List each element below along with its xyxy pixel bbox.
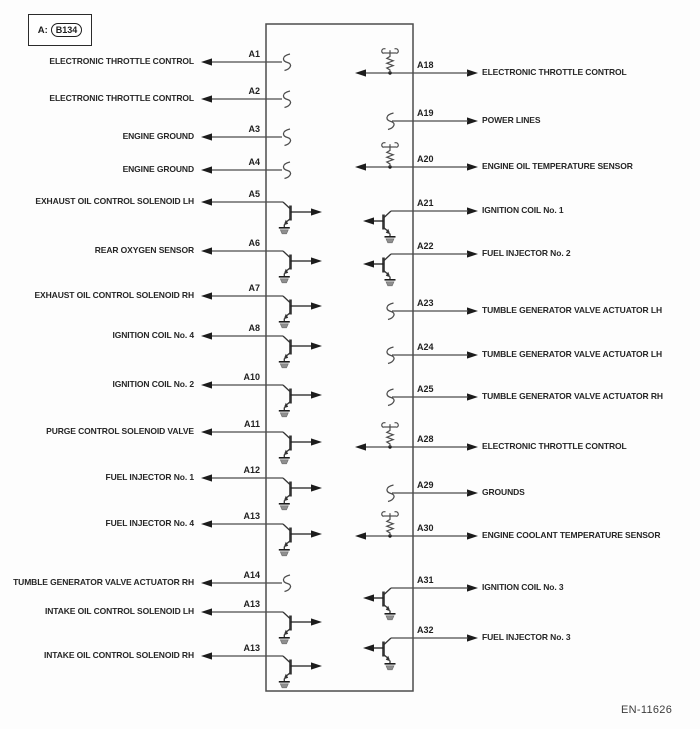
arrowhead-left xyxy=(355,532,366,539)
driver-transistor-icon xyxy=(363,588,396,620)
pin-number-label: A18 xyxy=(417,60,434,70)
pin-number-label: A3 xyxy=(180,124,260,134)
pin-row-right xyxy=(363,250,478,285)
signal-label: ELECTRONIC THROTTLE CONTROL xyxy=(482,441,627,452)
pin-row-left xyxy=(201,652,322,687)
driver-transistor-icon xyxy=(279,612,322,644)
arrowhead-left xyxy=(201,428,212,435)
ground-icon xyxy=(279,504,290,510)
driver-transistor-icon xyxy=(279,432,322,464)
arrowhead-right xyxy=(311,662,322,669)
arrowhead-right xyxy=(467,69,478,76)
arrowhead-left xyxy=(201,292,212,299)
arrowhead-right xyxy=(467,634,478,641)
arrowhead-right xyxy=(467,163,478,170)
wiring-diagram-page: A: B134 ELECTRONIC THROTTLE CONTROLA1ELE… xyxy=(0,0,700,729)
signal-label: PURGE CONTROL SOLENOID VALVE xyxy=(0,426,194,437)
pin-number-label: A32 xyxy=(417,625,434,635)
pin-number-label: A22 xyxy=(417,241,434,251)
pin-number-label: A5 xyxy=(180,189,260,199)
pin-number-label: A10 xyxy=(180,372,260,382)
pin-row-left xyxy=(201,608,322,643)
pin-number-label: A12 xyxy=(180,465,260,475)
pin-row-right xyxy=(363,584,478,619)
driver-transistor-icon xyxy=(363,211,396,243)
ecm-connector-box xyxy=(266,24,413,691)
pin-number-label: A31 xyxy=(417,575,434,585)
arrowhead-left xyxy=(201,198,212,205)
pin-number-label: A20 xyxy=(417,154,434,164)
arrowhead-left xyxy=(201,520,212,527)
pin-row-left xyxy=(201,198,322,233)
arrowhead-left xyxy=(201,166,212,173)
arrowhead-right xyxy=(467,584,478,591)
pin-number-label: A2 xyxy=(180,86,260,96)
break-icon xyxy=(283,54,290,71)
pin-number-label: A13 xyxy=(180,643,260,653)
driver-transistor-icon xyxy=(363,638,396,670)
ground-icon xyxy=(279,458,290,464)
signal-label: TUMBLE GENERATOR VALVE ACTUATOR LH xyxy=(482,305,662,316)
driver-transistor-icon xyxy=(279,524,322,556)
arrowhead-left xyxy=(201,652,212,659)
signal-label: ENGINE GROUND xyxy=(0,131,194,142)
pin-number-label: A8 xyxy=(180,323,260,333)
signal-label: FUEL INJECTOR No. 2 xyxy=(482,248,570,259)
ground-icon xyxy=(279,277,290,283)
arrowhead-right xyxy=(311,302,322,309)
pin-row-left xyxy=(201,520,322,555)
arrowhead-left xyxy=(201,474,212,481)
signal-label: TUMBLE GENERATOR VALVE ACTUATOR LH xyxy=(482,349,662,360)
arrowhead-right xyxy=(311,484,322,491)
arrowhead-left xyxy=(201,247,212,254)
arrowhead-right xyxy=(467,307,478,314)
arrowhead-right xyxy=(311,618,322,625)
ground-icon xyxy=(279,411,290,417)
ground-icon xyxy=(279,550,290,556)
arrowhead-right xyxy=(311,342,322,349)
pin-number-label: A13 xyxy=(180,511,260,521)
signal-label: GROUNDS xyxy=(482,487,525,498)
arrowhead-right xyxy=(467,250,478,257)
pin-number-label: A30 xyxy=(417,523,434,533)
ground-icon xyxy=(279,362,290,368)
pullup-resistor-icon xyxy=(382,423,398,449)
arrowhead-left xyxy=(355,69,366,76)
pin-row-left xyxy=(201,381,322,416)
arrowhead-left xyxy=(363,260,374,267)
arrowhead-right xyxy=(311,391,322,398)
signal-label: REAR OXYGEN SENSOR xyxy=(0,245,194,256)
pin-number-label: A21 xyxy=(417,198,434,208)
driver-transistor-icon xyxy=(279,478,322,510)
driver-transistor-icon xyxy=(363,254,396,286)
driver-transistor-icon xyxy=(279,656,322,688)
signal-label: ELECTRONIC THROTTLE CONTROL xyxy=(0,93,194,104)
signal-label: IGNITION COIL No. 2 xyxy=(0,379,194,390)
arrowhead-right xyxy=(467,443,478,450)
pin-number-label: A23 xyxy=(417,298,434,308)
driver-transistor-icon xyxy=(279,336,322,368)
signal-label: ELECTRONIC THROTTLE CONTROL xyxy=(0,56,194,67)
pin-number-label: A29 xyxy=(417,480,434,490)
ground-icon xyxy=(385,664,396,670)
arrowhead-left xyxy=(363,594,374,601)
arrowhead-right xyxy=(311,530,322,537)
arrowhead-right xyxy=(467,351,478,358)
arrowhead-left xyxy=(201,332,212,339)
pullup-resistor-icon xyxy=(382,143,398,169)
signal-label: FUEL INJECTOR No. 3 xyxy=(482,632,570,643)
pin-number-label: A19 xyxy=(417,108,434,118)
pin-row-left xyxy=(201,247,322,282)
pin-row-left xyxy=(201,332,322,367)
driver-transistor-icon xyxy=(279,202,322,234)
break-icon xyxy=(283,575,290,592)
pin-number-label: A6 xyxy=(180,238,260,248)
arrowhead-left xyxy=(201,95,212,102)
break-icon xyxy=(283,129,290,146)
arrowhead-right xyxy=(467,393,478,400)
signal-label: FUEL INJECTOR No. 1 xyxy=(0,472,194,483)
signal-label: POWER LINES xyxy=(482,115,540,126)
signal-label: IGNITION COIL No. 4 xyxy=(0,330,194,341)
arrowhead-left xyxy=(363,644,374,651)
signal-label: EXHAUST OIL CONTROL SOLENOID LH xyxy=(0,196,194,207)
pin-number-label: A13 xyxy=(180,599,260,609)
arrowhead-right xyxy=(467,532,478,539)
arrowhead-left xyxy=(201,133,212,140)
wiring-canvas xyxy=(0,0,700,729)
signal-label: TUMBLE GENERATOR VALVE ACTUATOR RH xyxy=(482,391,663,402)
ground-icon xyxy=(279,322,290,328)
pin-number-label: A14 xyxy=(180,570,260,580)
pin-number-label: A11 xyxy=(180,419,260,429)
pin-number-label: A24 xyxy=(417,342,434,352)
ground-icon xyxy=(279,228,290,234)
ground-icon xyxy=(385,237,396,243)
arrowhead-left xyxy=(201,579,212,586)
ground-icon xyxy=(385,614,396,620)
pin-number-label: A25 xyxy=(417,384,434,394)
arrowhead-left xyxy=(355,443,366,450)
arrowhead-right xyxy=(467,117,478,124)
pin-row-left xyxy=(201,474,322,509)
figure-code: EN-11626 xyxy=(621,704,672,716)
arrowhead-right xyxy=(311,257,322,264)
signal-label: INTAKE OIL CONTROL SOLENOID LH xyxy=(0,606,194,617)
signal-label: ELECTRONIC THROTTLE CONTROL xyxy=(482,67,627,78)
signal-label: IGNITION COIL No. 1 xyxy=(482,205,564,216)
arrowhead-right xyxy=(467,489,478,496)
pin-row-left xyxy=(201,428,322,463)
arrowhead-right xyxy=(311,438,322,445)
signal-label: TUMBLE GENERATOR VALVE ACTUATOR RH xyxy=(0,577,194,588)
signal-label: ENGINE GROUND xyxy=(0,164,194,175)
arrowhead-right xyxy=(467,207,478,214)
ground-icon xyxy=(279,638,290,644)
pin-number-label: A4 xyxy=(180,157,260,167)
break-icon xyxy=(283,91,290,108)
signal-label: FUEL INJECTOR No. 4 xyxy=(0,518,194,529)
pin-number-label: A28 xyxy=(417,434,434,444)
driver-transistor-icon xyxy=(279,251,322,283)
ground-icon xyxy=(279,682,290,688)
pin-row-right xyxy=(363,634,478,669)
signal-label: ENGINE COOLANT TEMPERATURE SENSOR xyxy=(482,530,660,541)
signal-label: ENGINE OIL TEMPERATURE SENSOR xyxy=(482,161,633,172)
arrowhead-left xyxy=(201,381,212,388)
pin-number-label: A7 xyxy=(180,283,260,293)
signal-label: INTAKE OIL CONTROL SOLENOID RH xyxy=(0,650,194,661)
pullup-resistor-icon xyxy=(382,512,398,538)
arrowhead-left xyxy=(201,608,212,615)
arrowhead-left xyxy=(201,58,212,65)
arrowhead-left xyxy=(355,163,366,170)
arrowhead-left xyxy=(363,217,374,224)
pullup-resistor-icon xyxy=(382,49,398,75)
signal-label: IGNITION COIL No. 3 xyxy=(482,582,564,593)
driver-transistor-icon xyxy=(279,296,322,328)
pin-row-right xyxy=(363,207,478,242)
pin-number-label: A1 xyxy=(180,49,260,59)
break-icon xyxy=(283,162,290,179)
signal-label: EXHAUST OIL CONTROL SOLENOID RH xyxy=(0,290,194,301)
ground-icon xyxy=(385,280,396,286)
arrowhead-right xyxy=(311,208,322,215)
driver-transistor-icon xyxy=(279,385,322,417)
